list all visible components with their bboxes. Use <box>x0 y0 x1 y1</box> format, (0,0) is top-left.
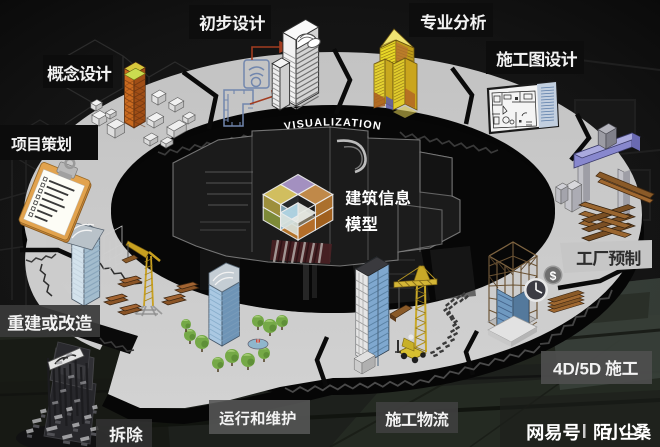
svg-text:4D/5D: 4D/5D <box>553 360 601 379</box>
svg-text:$: $ <box>550 269 557 283</box>
